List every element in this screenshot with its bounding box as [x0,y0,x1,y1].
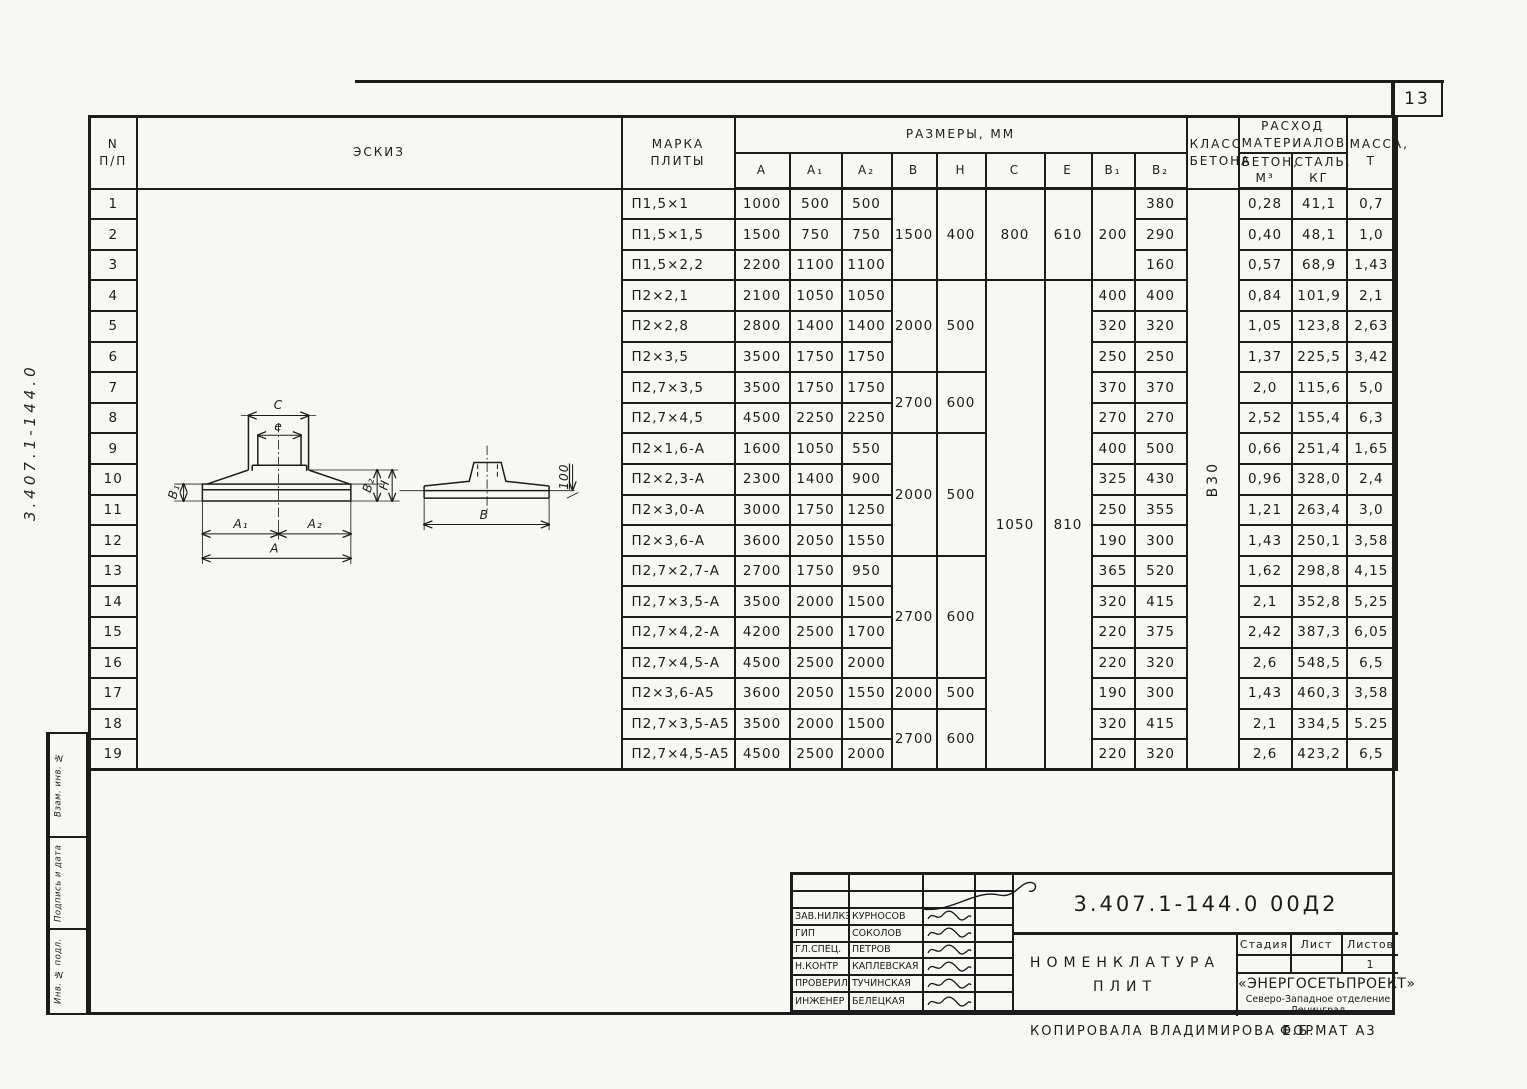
mass: 1,65 [1347,433,1397,464]
row-number: 15 [90,617,137,648]
steel-weight: 387,3 [1292,617,1347,648]
dim-a1: 1400 [790,464,842,495]
header-steel-weight: Сталь, кг [1292,153,1347,189]
drawing-title-line2: плит [1093,976,1157,1000]
row-number: 8 [90,403,137,434]
plate-mark: П2,7×2,7-А [622,556,735,587]
signature-scribble [924,976,976,993]
plate-mark: П2×3,0-А [622,495,735,526]
dim-a: 4200 [735,617,790,648]
signature-role: Гл.спец. [793,943,850,960]
mass: 2,4 [1347,464,1397,495]
signature-cell [976,909,1014,926]
dim-b2: 430 [1135,464,1187,495]
dim-b1: 320 [1092,709,1135,740]
dim-a: 1000 [735,189,790,220]
dim-b1: 320 [1092,311,1135,342]
dim-h: 600 [937,709,986,770]
dim-a2: 2250 [842,403,892,434]
plate-mark: П2,7×4,5 [622,403,735,434]
plate-mark: П2,7×3,5-А5 [622,709,735,740]
signature-cell [793,875,850,892]
dim-a2: 2000 [842,739,892,770]
dim-a: 3500 [735,372,790,403]
dim-b2: 290 [1135,219,1187,250]
plate-mark: П2×3,5 [622,342,735,373]
header-dim-a: A [735,153,790,189]
steel-weight: 123,8 [1292,311,1347,342]
mass: 6,05 [1347,617,1397,648]
dim-b: 2700 [892,709,937,770]
mass: 2,63 [1347,311,1397,342]
dim-a: 2700 [735,556,790,587]
dim-b: 2000 [892,433,937,555]
concrete-volume: 0,40 [1239,219,1292,250]
title-block: Зав.НИЛКЭКурносовГИПСоколовГл.спец.Петро… [790,872,1395,1013]
sidebar-label: Подпись и дата [48,838,67,928]
stage-value-row: 1 [1238,956,1398,974]
row-number: 6 [90,342,137,373]
dim-a1: 1750 [790,556,842,587]
dim-b2: 380 [1135,189,1187,220]
dim-a2: 1500 [842,586,892,617]
signature-role: Н.контр [793,959,850,976]
dim-e: 810 [1045,280,1092,770]
dim-a: 2100 [735,280,790,311]
sketch-cell: C e B₁ B₂ H A₁ A₂ A B 100 [137,189,622,770]
organization-city: Ленинград [1238,1005,1398,1017]
row-number: 19 [90,739,137,770]
table-row: 1 C e B₁ B₂ H A₁ A₂ A [90,189,1397,220]
handwritten-doc-code: 3.407.1-144.0 [12,325,48,560]
steel-weight: 298,8 [1292,556,1347,587]
page-number-box: 13 [1391,83,1443,117]
dim-a2: 1750 [842,342,892,373]
signature-name: Тучинская [850,976,924,993]
row-number: 4 [90,280,137,311]
stage-header-row: Стадия Лист Листов [1238,935,1398,956]
plate-mark: П2×2,8 [622,311,735,342]
dim-a1: 2050 [790,525,842,556]
organization-name: «ЭНЕРГОСЕТЬПРОЕКТ» [1238,976,1398,994]
dim-b: 2700 [892,556,937,678]
plate-cross-section-sketch: C e B₁ B₂ H A₁ A₂ A B 100 [138,190,621,769]
mass: 4,15 [1347,556,1397,587]
concrete-volume: 1,21 [1239,495,1292,526]
concrete-volume: 0,84 [1239,280,1292,311]
document-number: 3.407.1-144.0 00Д2 [1014,875,1398,935]
dim-a: 3000 [735,495,790,526]
dim-a2: 2000 [842,648,892,679]
dim-a1: 2500 [790,648,842,679]
signature-cell [924,892,976,909]
dim-a2: 1500 [842,709,892,740]
dim-a: 4500 [735,648,790,679]
signature-name: Петров [850,943,924,960]
signature-scribble [924,959,976,976]
dim-b1: 400 [1092,433,1135,464]
organization-block: «ЭНЕРГОСЕТЬПРОЕКТ» Северо-Западное отдел… [1238,974,1398,1017]
dim-a1: 1750 [790,372,842,403]
concrete-volume: 2,1 [1239,709,1292,740]
header-concrete-volume: Бетон, м³ [1239,153,1292,189]
header-dim-a1: A₁ [790,153,842,189]
dim-a1: 1050 [790,280,842,311]
signature-cell [850,892,924,909]
row-number: 3 [90,250,137,281]
drawing-title-line1: Номенклатура [1030,952,1220,976]
dim-b1: 190 [1092,678,1135,709]
dim-a1: 2250 [790,403,842,434]
header-dim-h: H [937,153,986,189]
plate-mark: П2×2,3-А [622,464,735,495]
dim-b2: 320 [1135,739,1187,770]
dim-b2: 250 [1135,342,1187,373]
steel-weight: 155,4 [1292,403,1347,434]
dim-a: 4500 [735,403,790,434]
row-number: 7 [90,372,137,403]
steel-weight: 250,1 [1292,525,1347,556]
plate-mark: П2×3,6-А [622,525,735,556]
mass: 6,3 [1347,403,1397,434]
steel-weight: 225,5 [1292,342,1347,373]
stage-header: Стадия [1238,935,1292,956]
dim-a1: 2050 [790,678,842,709]
sidebar-cell: Взам. инв. № [48,734,86,838]
steel-weight: 548,5 [1292,648,1347,679]
signature-scribble [924,926,976,943]
dim-b: 2700 [892,372,937,433]
dim-b2: 270 [1135,403,1187,434]
dim-a1: 1050 [790,433,842,464]
dim-h: 600 [937,556,986,678]
sheets-value: 1 [1343,956,1398,974]
mass: 6,5 [1347,739,1397,770]
row-number: 13 [90,556,137,587]
dim-h: 500 [937,433,986,555]
sheet-header: Лист [1292,935,1343,956]
signature-name: Белецкая [850,993,924,1010]
dim-a: 3500 [735,342,790,373]
dim-c: 1050 [986,280,1045,770]
header-materials-group: Расход материалов [1239,117,1347,153]
dim-b1: 220 [1092,648,1135,679]
sidebar-cell: Инв. № подл. [48,930,86,1013]
dim-a: 3600 [735,525,790,556]
plate-mark: П2×1,6-А [622,433,735,464]
signature-table: Зав.НИЛКЭКурносовГИПСоколовГл.спец.Петро… [793,875,1014,1010]
sheets-header: Листов [1343,935,1398,956]
signature-cell [793,892,850,909]
steel-weight: 352,8 [1292,586,1347,617]
row-number: 2 [90,219,137,250]
dim-h: 600 [937,372,986,433]
signature-cell [976,875,1014,892]
signature-cell [976,892,1014,909]
steel-weight: 251,4 [1292,433,1347,464]
sheet-top-border [355,80,1444,83]
plate-mark: П1,5×2,2 [622,250,735,281]
dim-label-c: C [273,398,282,412]
dim-b1: 220 [1092,739,1135,770]
mass: 6,5 [1347,648,1397,679]
dim-a: 2300 [735,464,790,495]
dim-a2: 550 [842,433,892,464]
header-dim-c: C [986,153,1045,189]
dim-b: 2000 [892,280,937,372]
header-dim-b: B [892,153,937,189]
header-row-number: N п/п [90,117,137,189]
dim-a2: 1250 [842,495,892,526]
steel-weight: 68,9 [1292,250,1347,281]
dim-h: 500 [937,678,986,709]
stage-value [1238,956,1292,974]
dim-a: 2800 [735,311,790,342]
concrete-class-cell: В30 [1187,189,1239,770]
dim-a1: 2000 [790,709,842,740]
row-number: 10 [90,464,137,495]
dim-a2: 950 [842,556,892,587]
signature-cell [976,993,1014,1010]
dim-label-a2: A₂ [306,517,322,531]
signature-cell [976,926,1014,943]
plate-mark: П1,5×1 [622,189,735,220]
dim-label-100: 100 [556,463,570,489]
dim-b1: 325 [1092,464,1135,495]
signature-cell [976,943,1014,960]
dim-b1: 370 [1092,372,1135,403]
mass: 1,43 [1347,250,1397,281]
header-dim-b2: B₂ [1135,153,1187,189]
dim-b2: 300 [1135,525,1187,556]
dim-a2: 500 [842,189,892,220]
dim-label-a1: A₁ [232,517,248,531]
dim-a: 1500 [735,219,790,250]
header-dim-b1: B₁ [1092,153,1135,189]
signature-cell [976,976,1014,993]
dim-b2: 370 [1135,372,1187,403]
dim-b2: 415 [1135,709,1187,740]
dim-a1: 500 [790,189,842,220]
header-plate-mark: Марка плиты [622,117,735,189]
mass: 1,0 [1347,219,1397,250]
dim-a: 4500 [735,739,790,770]
signature-name: Курносов [850,909,924,926]
row-number: 9 [90,433,137,464]
dim-b2: 160 [1135,250,1187,281]
concrete-volume: 0,66 [1239,433,1292,464]
row-number: 1 [90,189,137,220]
signature-role: Проверила [793,976,850,993]
signature-name: Соколов [850,926,924,943]
plate-mark: П1,5×1,5 [622,219,735,250]
dim-a1: 2500 [790,617,842,648]
steel-weight: 101,9 [1292,280,1347,311]
page-number: 13 [1404,89,1430,109]
concrete-volume: 1,37 [1239,342,1292,373]
concrete-volume: 0,96 [1239,464,1292,495]
dim-a2: 1100 [842,250,892,281]
dim-e: 610 [1045,189,1092,281]
dim-b1: 320 [1092,586,1135,617]
concrete-volume: 1,62 [1239,556,1292,587]
signature-cell [924,875,976,892]
dim-h: 500 [937,280,986,372]
dim-b2: 520 [1135,556,1187,587]
concrete-volume: 0,28 [1239,189,1292,220]
mass: 3,58 [1347,525,1397,556]
row-number: 16 [90,648,137,679]
dim-a: 3500 [735,586,790,617]
dim-a: 1600 [735,433,790,464]
mass: 0,7 [1347,189,1397,220]
sidebar-label: Инв. № подл. [48,930,67,1013]
dim-b2: 500 [1135,433,1187,464]
plate-mark: П2,7×3,5-А [622,586,735,617]
dim-b1: 365 [1092,556,1135,587]
organization-branch: Северо-Западное отделение [1238,994,1398,1006]
mass: 5.25 [1347,709,1397,740]
dim-b: 1500 [892,189,937,281]
plate-mark: П2×2,1 [622,280,735,311]
steel-weight: 48,1 [1292,219,1347,250]
concrete-volume: 1,43 [1239,678,1292,709]
dim-a2: 1700 [842,617,892,648]
mass: 3,0 [1347,495,1397,526]
dim-label-b1: B₁ [165,482,182,500]
row-number: 18 [90,709,137,740]
signature-scribble [924,943,976,960]
dim-b2: 320 [1135,648,1187,679]
dim-b1: 250 [1092,495,1135,526]
header-sketch: Эскиз [137,117,622,189]
steel-weight: 41,1 [1292,189,1347,220]
dim-label-h: H [376,478,392,491]
dim-a1: 1750 [790,342,842,373]
dim-a: 3500 [735,709,790,740]
signature-scribble [924,993,976,1010]
header-concrete-class: Класс бетона [1187,117,1239,189]
dim-b1: 200 [1092,189,1135,281]
mass: 3,42 [1347,342,1397,373]
dim-a: 2200 [735,250,790,281]
dim-a2: 1550 [842,678,892,709]
signature-cell [850,875,924,892]
dim-a1: 750 [790,219,842,250]
dim-a: 3600 [735,678,790,709]
signature-name: Каплевская [850,959,924,976]
row-number: 5 [90,311,137,342]
plate-mark: П2×3,6-А5 [622,678,735,709]
sidebar-cell: Подпись и дата [48,838,86,930]
dim-label-b: B [479,508,488,522]
concrete-volume: 1,05 [1239,311,1292,342]
plate-mark: П2,7×4,5-А5 [622,739,735,770]
plate-mark: П2,7×4,2-А [622,617,735,648]
row-number: 17 [90,678,137,709]
mass: 3,58 [1347,678,1397,709]
dim-label-b2: B₂ [359,475,376,493]
dim-b2: 400 [1135,280,1187,311]
row-number: 11 [90,495,137,526]
sheet-value [1292,956,1343,974]
concrete-volume: 2,42 [1239,617,1292,648]
header-dimensions-group: Размеры, мм [735,117,1187,153]
dim-a2: 1550 [842,525,892,556]
dim-b2: 355 [1135,495,1187,526]
signature-role: Зав.НИЛКЭ [793,909,850,926]
scanned-drawing-sheet: { "page": { "number": "13", "side_code":… [0,0,1527,1089]
dim-a2: 1050 [842,280,892,311]
dim-a1: 2000 [790,586,842,617]
concrete-volume: 2,52 [1239,403,1292,434]
steel-weight: 328,0 [1292,464,1347,495]
dim-b2: 375 [1135,617,1187,648]
dim-a2: 900 [842,464,892,495]
dim-a2: 1750 [842,372,892,403]
mass: 5,0 [1347,372,1397,403]
steel-weight: 460,3 [1292,678,1347,709]
concrete-volume: 2,6 [1239,648,1292,679]
concrete-volume: 2,0 [1239,372,1292,403]
mass: 2,1 [1347,280,1397,311]
header-mass: Масса, т [1347,117,1397,189]
header-dim-e: e [1045,153,1092,189]
dim-c: 800 [986,189,1045,281]
dim-b1: 190 [1092,525,1135,556]
concrete-volume: 0,57 [1239,250,1292,281]
concrete-volume: 1,43 [1239,525,1292,556]
dim-b1: 220 [1092,617,1135,648]
signature-role: ГИП [793,926,850,943]
dim-a2: 750 [842,219,892,250]
plate-mark: П2,7×3,5 [622,372,735,403]
dim-a1: 2500 [790,739,842,770]
drawing-title: Номенклатура плит [1014,935,1238,1016]
dim-b1: 270 [1092,403,1135,434]
steel-weight: 423,2 [1292,739,1347,770]
copied-by-note: Копировала Владимирова Е.Б. [1030,1024,1315,1039]
frame-sidebar: Взам. инв. № Подпись и дата Инв. № подл. [46,732,88,1015]
dim-b2: 320 [1135,311,1187,342]
stage-block: Стадия Лист Листов 1 «ЭНЕРГОСЕТЬПРОЕКТ» … [1238,935,1398,1016]
steel-weight: 334,5 [1292,709,1347,740]
dim-b: 2000 [892,678,937,709]
nomenclature-table: N п/п Эскиз Марка плиты Размеры, мм Клас… [88,115,1398,771]
dim-a1: 1400 [790,311,842,342]
concrete-volume: 2,6 [1239,739,1292,770]
steel-weight: 263,4 [1292,495,1347,526]
dim-b1: 400 [1092,280,1135,311]
signature-cell [976,959,1014,976]
row-number: 14 [90,586,137,617]
concrete-volume: 2,1 [1239,586,1292,617]
dim-b2: 415 [1135,586,1187,617]
steel-weight: 115,6 [1292,372,1347,403]
dim-a1: 1100 [790,250,842,281]
mass: 5,25 [1347,586,1397,617]
header-dim-a2: A₂ [842,153,892,189]
dim-a1: 1750 [790,495,842,526]
signature-scribble [924,909,976,926]
dim-b1: 250 [1092,342,1135,373]
dim-h: 400 [937,189,986,281]
row-number: 12 [90,525,137,556]
signature-role: Инженер [793,993,850,1010]
concrete-class-value: В30 [1205,461,1221,497]
dim-a2: 1400 [842,311,892,342]
dim-label-a: A [269,541,279,555]
